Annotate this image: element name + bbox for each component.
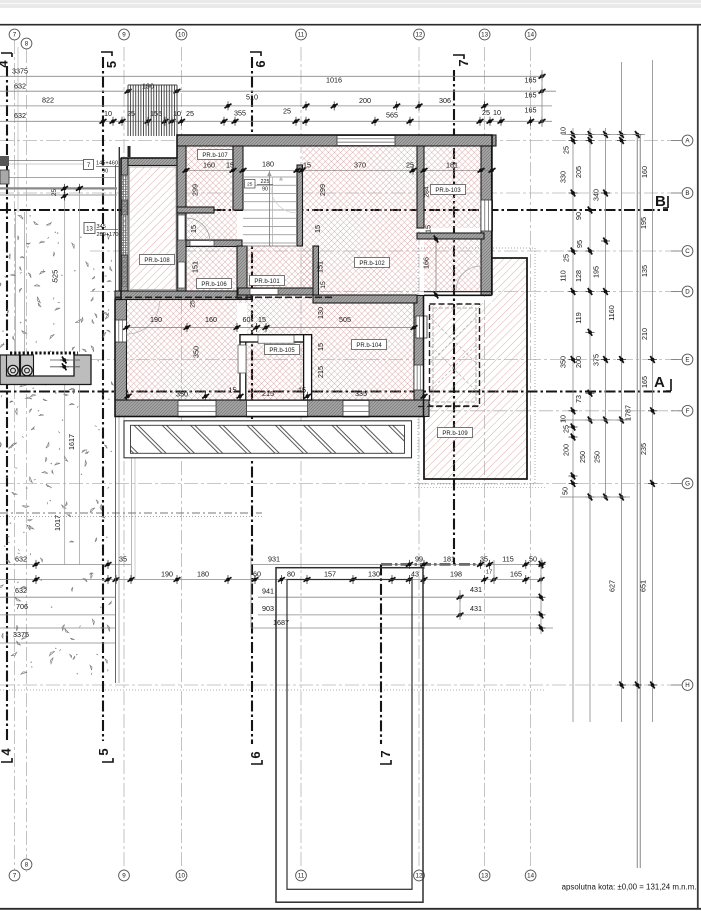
svg-text:181: 181	[443, 555, 455, 564]
svg-text:165: 165	[510, 570, 522, 579]
svg-text:25: 25	[186, 109, 194, 118]
svg-text:565: 565	[386, 111, 398, 120]
svg-text:PR.b-104: PR.b-104	[356, 343, 382, 349]
svg-text:4: 4	[0, 748, 14, 756]
svg-text:PR.b-101: PR.b-101	[254, 279, 280, 285]
svg-text:10: 10	[493, 108, 501, 117]
svg-text:95: 95	[575, 240, 584, 248]
svg-text:627: 627	[608, 580, 617, 592]
svg-text:350: 350	[176, 390, 188, 399]
svg-text:1617: 1617	[67, 434, 76, 450]
svg-text:10: 10	[104, 109, 112, 118]
svg-text:130: 130	[316, 307, 325, 319]
svg-text:165: 165	[525, 76, 537, 85]
svg-text:505: 505	[339, 315, 351, 324]
svg-text:6: 6	[253, 60, 268, 67]
svg-text:5: 5	[104, 61, 119, 68]
svg-text:284: 284	[424, 186, 431, 198]
svg-text:160: 160	[640, 166, 649, 178]
svg-text:E: E	[685, 357, 689, 364]
svg-text:25: 25	[562, 425, 571, 433]
svg-text:50: 50	[561, 487, 570, 495]
svg-text:1016: 1016	[326, 76, 342, 85]
svg-text:25: 25	[406, 161, 414, 170]
svg-text:PR.b-105: PR.b-105	[269, 348, 295, 354]
svg-text:H: H	[685, 682, 689, 689]
svg-text:632: 632	[14, 111, 26, 120]
svg-text:14: 14	[527, 32, 534, 39]
svg-text:7: 7	[13, 32, 17, 39]
svg-text:195: 195	[639, 217, 648, 229]
svg-text:17: 17	[486, 570, 492, 576]
svg-text:165: 165	[525, 91, 537, 100]
svg-text:PR.b-107: PR.b-107	[202, 153, 228, 159]
svg-text:PR.b-106: PR.b-106	[201, 282, 227, 288]
svg-text:D: D	[685, 289, 690, 296]
svg-text:335: 335	[355, 389, 367, 398]
svg-text:632: 632	[15, 555, 27, 564]
svg-text:25: 25	[190, 300, 197, 308]
svg-text:941: 941	[262, 587, 274, 596]
svg-text:15: 15	[316, 343, 325, 351]
svg-text:90: 90	[102, 169, 108, 175]
svg-text:8: 8	[25, 41, 29, 48]
svg-text:1787: 1787	[624, 405, 633, 421]
svg-text:345: 345	[97, 224, 106, 230]
svg-text:10: 10	[178, 32, 185, 39]
svg-text:15: 15	[298, 386, 306, 395]
svg-text:80: 80	[287, 570, 295, 579]
svg-text:10: 10	[178, 873, 185, 880]
svg-text:370: 370	[354, 161, 366, 170]
svg-text:5: 5	[96, 748, 111, 755]
svg-text:15: 15	[258, 315, 266, 324]
svg-text:PR.b-109: PR.b-109	[442, 431, 468, 437]
svg-text:306: 306	[439, 96, 451, 105]
svg-text:13: 13	[481, 873, 488, 880]
svg-text:35: 35	[480, 555, 488, 564]
svg-text:355: 355	[234, 109, 246, 118]
svg-text:15: 15	[226, 161, 234, 170]
svg-text:B: B	[685, 190, 689, 197]
svg-text:4: 4	[0, 60, 11, 68]
svg-text:35: 35	[119, 555, 127, 564]
svg-text:160: 160	[203, 161, 215, 170]
svg-text:350: 350	[192, 346, 201, 358]
svg-text:1160: 1160	[607, 305, 616, 320]
svg-text:15: 15	[424, 225, 433, 233]
svg-text:13: 13	[86, 227, 93, 233]
svg-text:198: 198	[450, 570, 462, 579]
svg-text:157: 157	[324, 570, 336, 579]
svg-text:128: 128	[574, 270, 583, 282]
svg-text:431: 431	[470, 585, 482, 594]
svg-text:350: 350	[559, 356, 568, 368]
svg-text:15: 15	[320, 281, 327, 289]
svg-text:822: 822	[42, 96, 54, 105]
svg-text:180: 180	[262, 160, 274, 169]
svg-text:50: 50	[529, 555, 537, 564]
svg-text:10: 10	[559, 127, 568, 135]
svg-text:651: 651	[639, 580, 648, 592]
svg-text:15: 15	[303, 161, 311, 170]
svg-text:525: 525	[51, 270, 60, 283]
svg-text:299: 299	[191, 184, 200, 196]
svg-text:F: F	[686, 408, 690, 415]
svg-text:145+460: 145+460	[96, 161, 118, 167]
svg-text:60: 60	[243, 315, 251, 324]
svg-text:PR.b-108: PR.b-108	[144, 258, 170, 264]
svg-text:165: 165	[640, 376, 649, 388]
svg-text:25: 25	[283, 107, 291, 116]
svg-text:12: 12	[416, 32, 423, 39]
svg-text:200+170: 200+170	[97, 232, 119, 238]
svg-text:151: 151	[316, 261, 325, 273]
svg-text:15: 15	[189, 225, 198, 233]
svg-text:3375: 3375	[12, 67, 28, 76]
svg-text:190: 190	[150, 315, 162, 324]
svg-text:15: 15	[313, 225, 322, 233]
svg-text:151: 151	[191, 261, 200, 273]
svg-text:706: 706	[16, 602, 28, 611]
svg-text:210: 210	[640, 328, 649, 340]
svg-text:235: 235	[639, 443, 648, 455]
svg-text:25: 25	[562, 146, 571, 154]
svg-text:200: 200	[359, 96, 371, 105]
svg-text:PR.b-103: PR.b-103	[435, 188, 461, 194]
svg-text:9: 9	[122, 32, 126, 39]
svg-text:215: 215	[262, 389, 274, 398]
svg-text:7: 7	[13, 873, 17, 880]
svg-text:299: 299	[318, 184, 327, 196]
svg-text:431: 431	[470, 604, 482, 613]
svg-text:90: 90	[574, 212, 583, 220]
svg-text:7: 7	[378, 750, 393, 757]
svg-text:135: 135	[640, 265, 649, 277]
svg-text:9: 9	[122, 873, 126, 880]
svg-text:119: 119	[574, 312, 583, 323]
svg-text:166: 166	[422, 257, 431, 269]
svg-text:A: A	[654, 374, 665, 391]
svg-text:11: 11	[298, 32, 305, 39]
svg-text:250: 250	[593, 451, 602, 463]
svg-text:340: 340	[592, 189, 601, 201]
svg-text:375: 375	[592, 354, 601, 366]
svg-text:250: 250	[578, 451, 587, 463]
svg-text:25: 25	[562, 254, 571, 262]
svg-text:C: C	[685, 248, 690, 255]
svg-text:1017: 1017	[53, 515, 62, 531]
svg-text:195: 195	[592, 266, 601, 278]
svg-text:110: 110	[559, 270, 568, 281]
svg-text:632: 632	[14, 82, 26, 91]
svg-text:14: 14	[527, 873, 534, 880]
svg-text:25: 25	[51, 189, 58, 196]
svg-text:115: 115	[502, 555, 513, 564]
svg-text:73: 73	[574, 395, 583, 403]
svg-text:12: 12	[416, 873, 423, 880]
svg-text:99: 99	[415, 555, 423, 564]
svg-text:165: 165	[525, 106, 537, 115]
svg-text:200: 200	[562, 444, 571, 456]
svg-text:8: 8	[25, 862, 29, 869]
svg-text:180: 180	[197, 570, 209, 579]
svg-text:15: 15	[229, 386, 237, 395]
svg-text:60: 60	[253, 570, 261, 579]
svg-text:181: 181	[446, 161, 458, 170]
svg-text:11: 11	[298, 873, 305, 880]
svg-text:130: 130	[368, 570, 380, 579]
svg-text:330: 330	[559, 171, 568, 183]
svg-text:510: 510	[246, 93, 258, 102]
svg-text:160: 160	[205, 315, 217, 324]
svg-text:PR.b-102: PR.b-102	[359, 261, 385, 267]
svg-text:215: 215	[316, 366, 325, 378]
svg-text:6: 6	[248, 751, 263, 758]
svg-text:903: 903	[262, 604, 274, 613]
svg-text:25: 25	[247, 182, 253, 188]
svg-text:apsolutna kota: ±0,00 = 131,24: apsolutna kota: ±0,00 = 131,24 m.n.m.	[562, 883, 697, 892]
svg-text:10: 10	[559, 415, 568, 423]
svg-text:190: 190	[161, 570, 173, 579]
svg-text:G: G	[685, 481, 690, 488]
svg-text:931: 931	[268, 555, 280, 564]
svg-text:7: 7	[456, 59, 471, 66]
svg-text:13: 13	[481, 32, 488, 39]
svg-text:205: 205	[574, 166, 583, 178]
svg-text:25: 25	[482, 108, 490, 117]
svg-text:90: 90	[262, 187, 268, 193]
